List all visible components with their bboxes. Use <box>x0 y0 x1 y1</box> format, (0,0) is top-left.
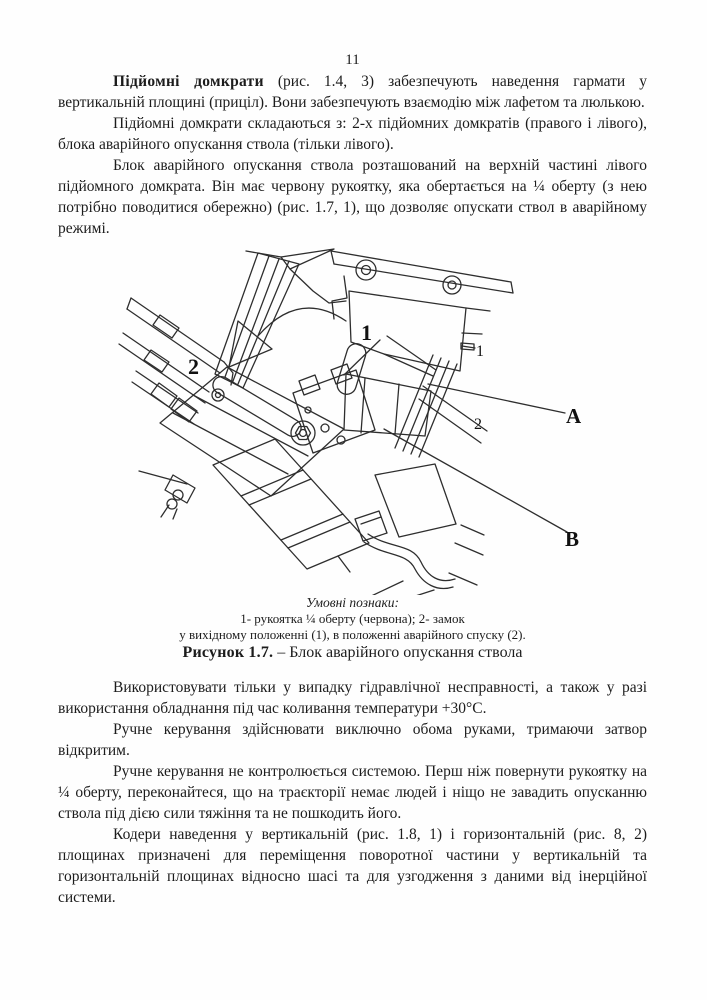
main-body <box>160 364 431 496</box>
paragraph-jack-composition: Підйомні домкрати складаються з: 2-х під… <box>58 113 647 155</box>
figure-legend-title: Умовні познаки: <box>103 595 603 611</box>
figure-1-7: 1 2 1 2 A B Умовні познаки: 1- рукоятка … <box>103 243 603 664</box>
figure-legend-line1: 1- рукоятка ¼ оберту (червона); 2- замок <box>103 611 603 627</box>
handle-position-capsule <box>334 341 367 396</box>
figure-label-view-b: B <box>565 527 579 551</box>
figure-label-view-a: A <box>566 404 582 428</box>
leader-lines <box>344 336 567 532</box>
figure-legend-line2: у вихідному положенні (1), в положенні а… <box>103 627 603 643</box>
figure-label-pos1: 1 <box>476 343 484 360</box>
figure-caption: Рисунок 1.7. – Блок аварійного опускання… <box>103 642 603 664</box>
paragraph-lead-bold: Підйомні домкрати <box>113 73 264 90</box>
quarter-turn-handle <box>209 373 314 445</box>
paragraph-emergency-block: Блок аварійного опускання ствола розташо… <box>58 155 647 239</box>
paragraph-lifting-jacks: Підйомні домкрати (рис. 1.4, 3) забезпеч… <box>58 71 647 113</box>
figure-drawing: 1 2 1 2 A B <box>103 243 603 595</box>
figure-label-pos2: 2 <box>474 416 482 433</box>
figure-label-item2: 2 <box>188 354 199 379</box>
figure-label-item1: 1 <box>361 320 372 345</box>
paragraph-manual-two-hands: Ручне керування здійснювати виключно обо… <box>58 719 647 761</box>
document-page: 11 Підйомні домкрати (рис. 1.4, 3) забез… <box>0 0 707 1000</box>
paragraph-manual-not-controlled: Ручне керування не контролюється системо… <box>58 761 647 824</box>
bottom-right-hoses <box>355 464 484 595</box>
figure-caption-text: – Блок аварійного опускання ствола <box>273 644 522 661</box>
figure-caption-label: Рисунок 1.7. <box>183 644 274 661</box>
page-number: 11 <box>58 50 647 71</box>
left-pipes <box>119 298 233 519</box>
paragraph-encoders: Кодери наведення у вертикальній (рис. 1.… <box>58 824 647 908</box>
bottom-cylinder <box>213 439 369 572</box>
paragraph-usage-conditions: Використовувати тільки у випадку гідравл… <box>58 677 647 719</box>
